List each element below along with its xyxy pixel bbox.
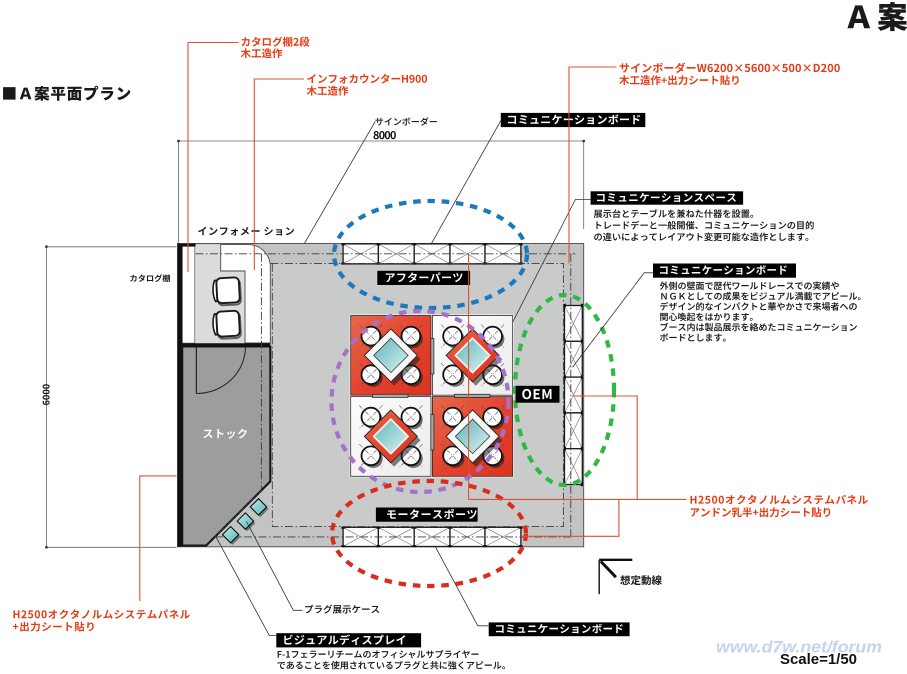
svg-text:Scale=1/50: Scale=1/50 — [780, 651, 857, 668]
